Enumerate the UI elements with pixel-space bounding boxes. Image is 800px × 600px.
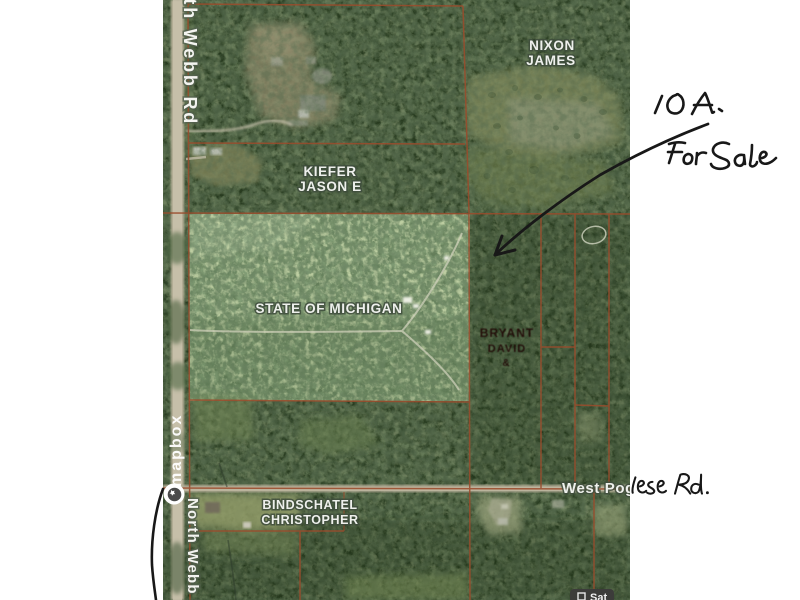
svg-text:&: & bbox=[502, 358, 509, 369]
svg-text:BINDSCHATEL: BINDSCHATEL bbox=[262, 498, 357, 512]
svg-text:JASON E: JASON E bbox=[298, 179, 361, 194]
svg-text:North Webb Rd: North Webb Rd bbox=[184, 498, 201, 600]
svg-text:STATE OF MICHIGAN: STATE OF MICHIGAN bbox=[256, 301, 403, 316]
svg-text:BRYANT: BRYANT bbox=[480, 326, 534, 340]
svg-text:NIXON: NIXON bbox=[529, 38, 575, 53]
svg-text:KIEFER: KIEFER bbox=[303, 164, 356, 179]
svg-text:JAMES: JAMES bbox=[526, 53, 576, 68]
svg-text:DAVID: DAVID bbox=[488, 343, 526, 355]
svg-text:mapbox: mapbox bbox=[168, 414, 185, 487]
svg-text:North Webb Rd: North Webb Rd bbox=[180, 0, 200, 126]
svg-text:Sat: Sat bbox=[590, 592, 607, 600]
svg-text:CHRISTOPHER: CHRISTOPHER bbox=[261, 513, 358, 527]
svg-text:West Pog: West Pog bbox=[562, 480, 635, 497]
